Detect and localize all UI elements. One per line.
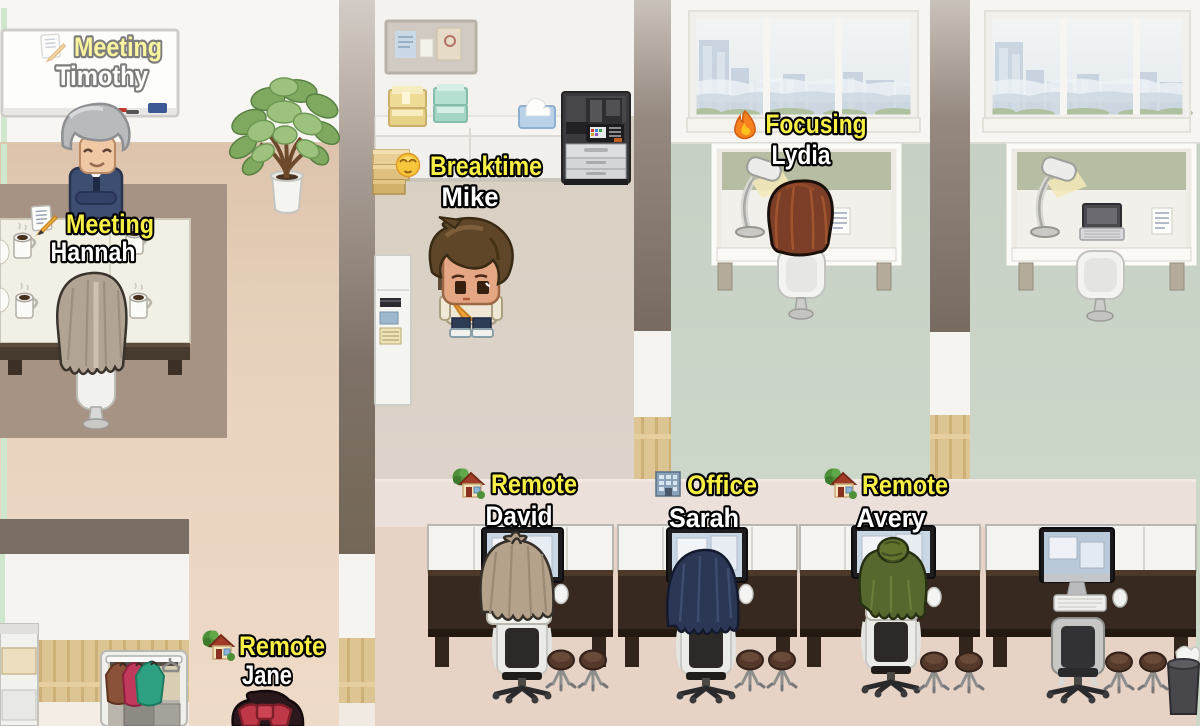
svg-text:Avery: Avery	[857, 503, 926, 533]
svg-text:Timothy: Timothy	[56, 61, 148, 91]
svg-text:Mike: Mike	[442, 182, 499, 212]
svg-text:Remote: Remote	[239, 631, 325, 661]
svg-text:Lydia: Lydia	[772, 140, 832, 170]
svg-text:Jane: Jane	[242, 660, 292, 690]
svg-text:Meeting: Meeting	[66, 209, 154, 239]
svg-text:Breaktime: Breaktime	[430, 151, 542, 181]
svg-text:David: David	[486, 501, 553, 531]
svg-text:Meeting: Meeting	[74, 32, 162, 62]
svg-text:Office: Office	[687, 470, 757, 500]
svg-text:Hannah: Hannah	[51, 237, 136, 267]
svg-text:Remote: Remote	[862, 470, 948, 500]
svg-text:Focusing: Focusing	[766, 109, 867, 139]
svg-text:Sarah: Sarah	[669, 503, 739, 533]
svg-text:Remote: Remote	[491, 469, 577, 499]
